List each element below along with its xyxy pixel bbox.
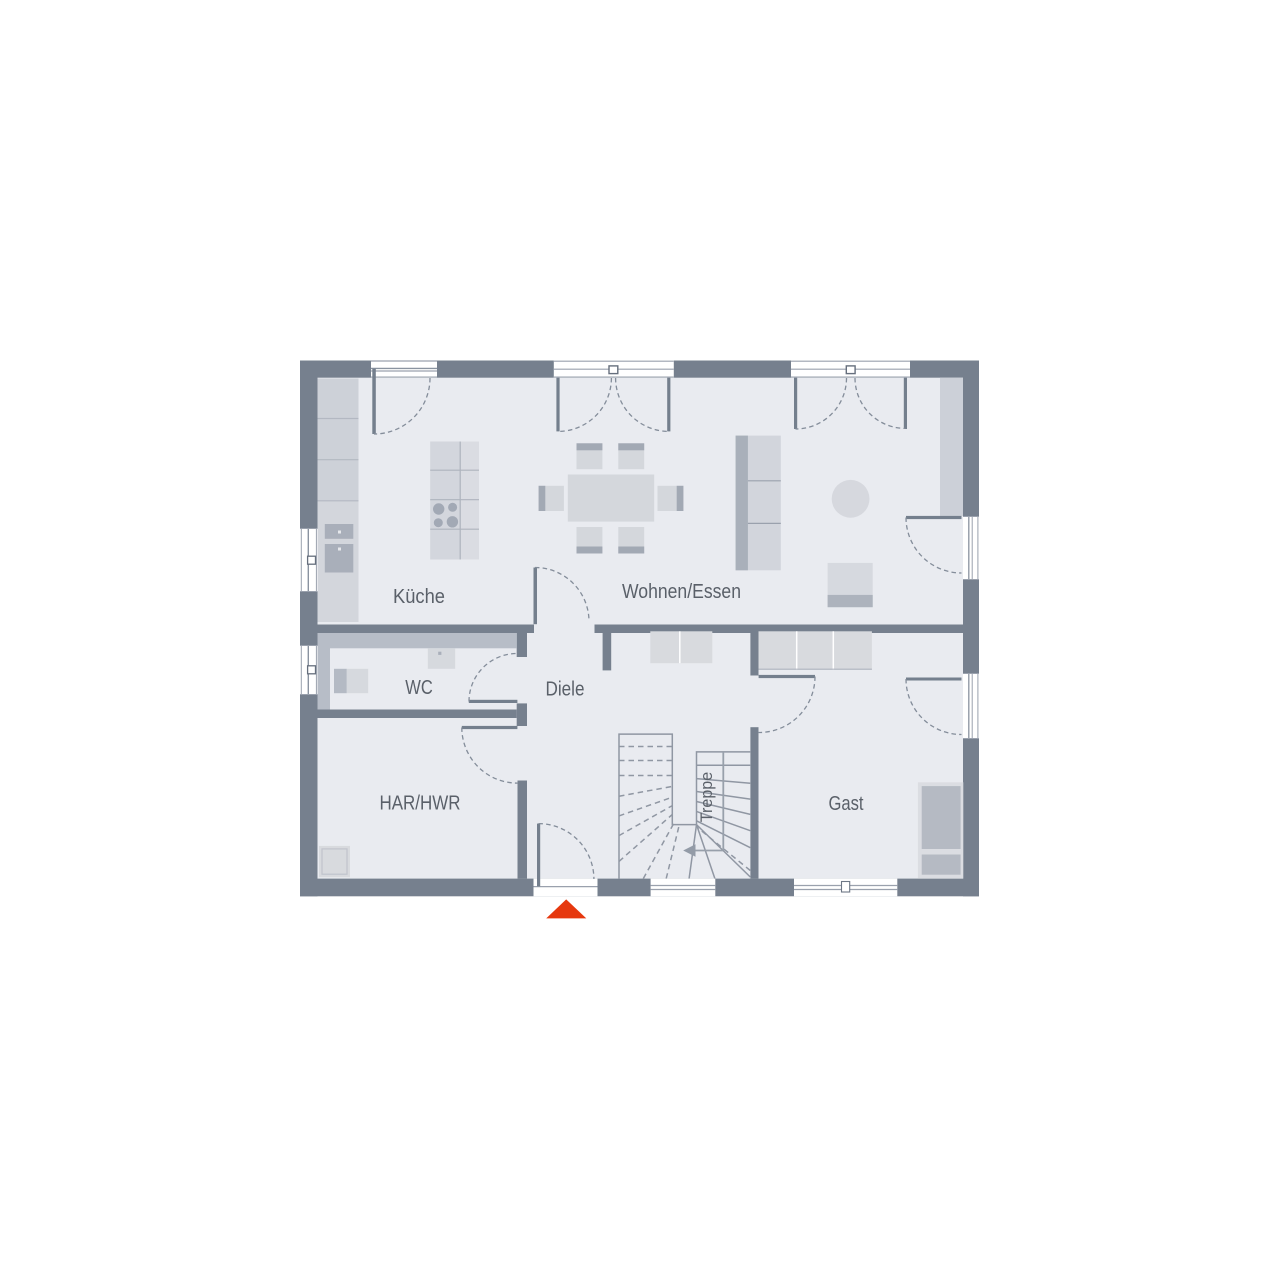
svg-text:Treppe: Treppe	[697, 772, 716, 823]
svg-text:WC: WC	[405, 677, 433, 699]
svg-text:Wohnen/Essen: Wohnen/Essen	[622, 581, 741, 603]
svg-text:Küche: Küche	[393, 586, 445, 608]
svg-text:Diele: Diele	[546, 679, 585, 701]
svg-text:Gast: Gast	[829, 793, 864, 815]
svg-text:HAR/HWR: HAR/HWR	[380, 793, 461, 815]
